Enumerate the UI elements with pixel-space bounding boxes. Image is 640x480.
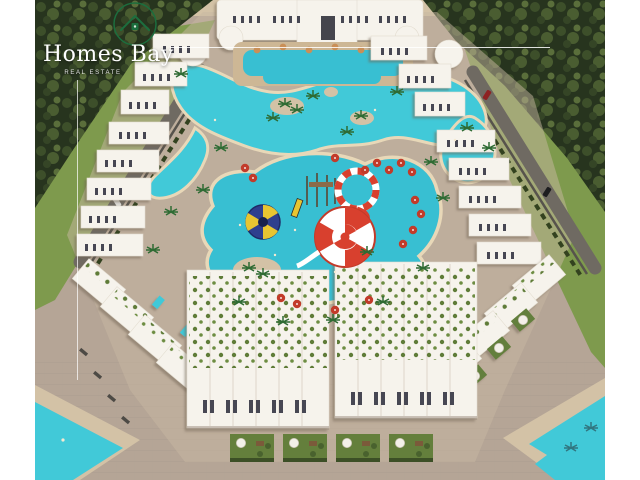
top-divider-line <box>170 47 550 48</box>
townhouses-bottom-right-block <box>335 262 477 420</box>
left-divider-line <box>77 80 78 380</box>
right-white-matte <box>605 0 640 480</box>
left-white-matte <box>0 0 35 480</box>
townhouses-bottom-left-block <box>187 270 329 430</box>
homes-bay-render: Homes Bay Real Estate <box>0 0 640 480</box>
funnel-slide-blue <box>245 205 280 239</box>
brand-wordmark: Homes Bay <box>43 42 143 67</box>
aerial-photo: Homes Bay Real Estate <box>35 0 605 480</box>
house-in-circle-icon <box>114 3 156 45</box>
brand-tagline: Real Estate <box>43 70 143 76</box>
